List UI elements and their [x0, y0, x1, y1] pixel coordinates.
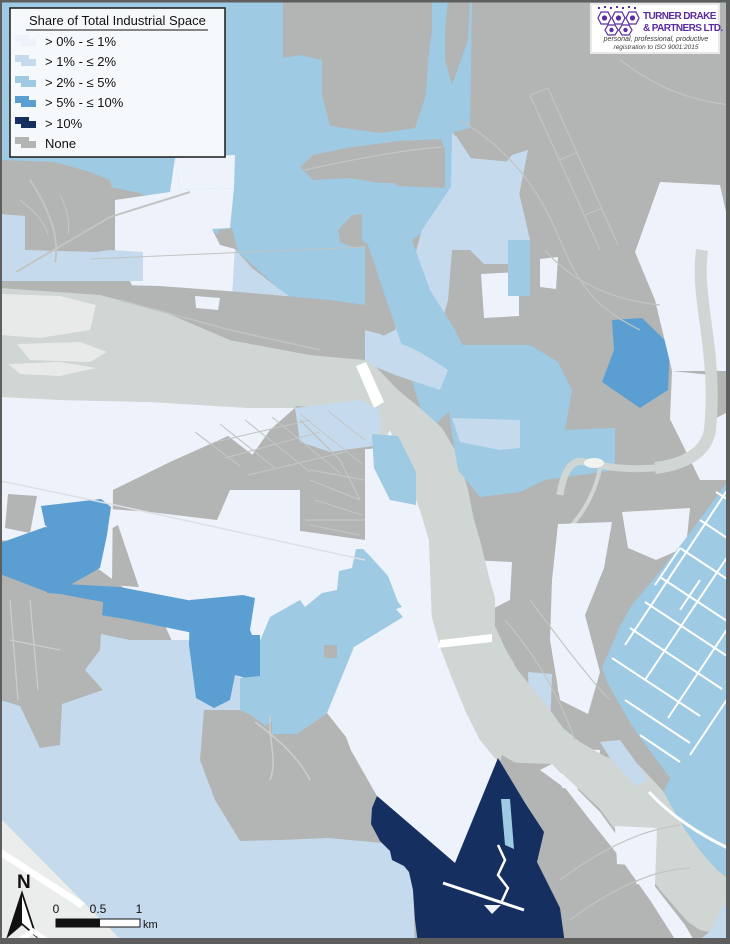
svg-text:km: km	[143, 919, 158, 931]
svg-text:registration to ISO 9001:2015: registration to ISO 9001:2015	[614, 44, 699, 51]
svg-text:1: 1	[136, 902, 143, 916]
svg-text:TURNER DRAKE: TURNER DRAKE	[643, 11, 717, 22]
svg-text:0: 0	[53, 902, 60, 916]
svg-text:N: N	[17, 872, 31, 893]
svg-text:personal, professional, produc: personal, professional, productive	[603, 36, 709, 43]
svg-text:> 0% - ≤ 1%: > 0% - ≤ 1%	[45, 34, 117, 49]
svg-text:0.5: 0.5	[90, 902, 107, 916]
svg-text:> 2% - ≤ 5%: > 2% - ≤ 5%	[45, 75, 117, 90]
svg-text:> 1% - ≤ 2%: > 1% - ≤ 2%	[45, 54, 117, 69]
svg-text:None: None	[45, 136, 76, 151]
svg-text:> 10%: > 10%	[45, 116, 83, 131]
svg-text:& PARTNERS LTD.: & PARTNERS LTD.	[643, 23, 723, 34]
svg-text:Share of Total Industrial Spac: Share of Total Industrial Space	[29, 13, 206, 28]
svg-text:> 5% - ≤ 10%: > 5% - ≤ 10%	[45, 95, 124, 110]
